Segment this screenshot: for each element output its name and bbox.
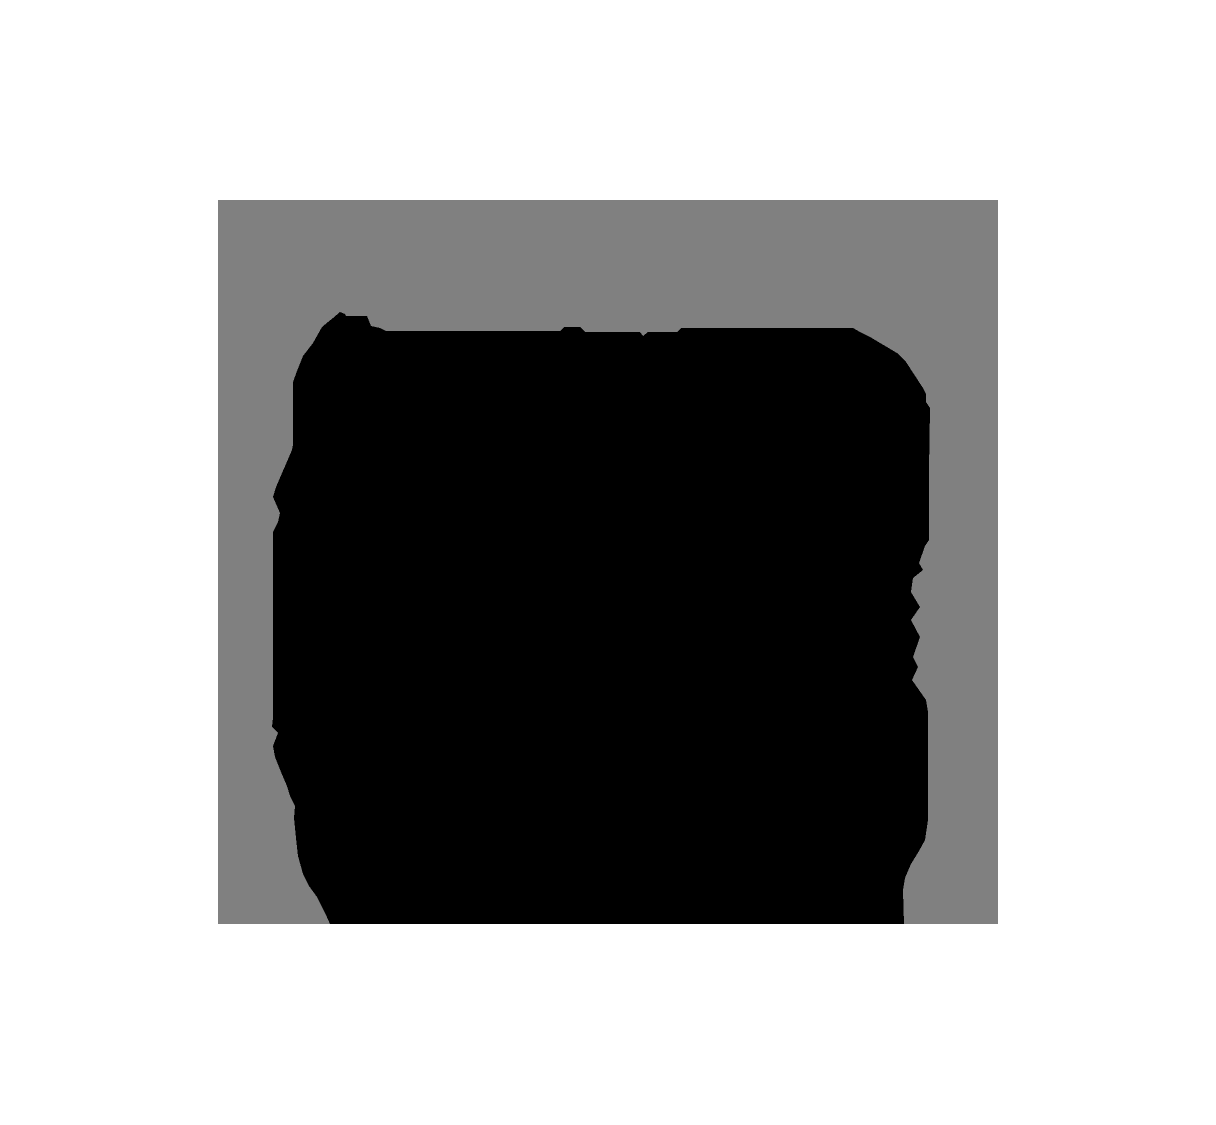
foreground-region-polygon	[272, 312, 930, 924]
mask-image	[0, 0, 1216, 1125]
segmentation-mask-svg	[0, 0, 1216, 1125]
